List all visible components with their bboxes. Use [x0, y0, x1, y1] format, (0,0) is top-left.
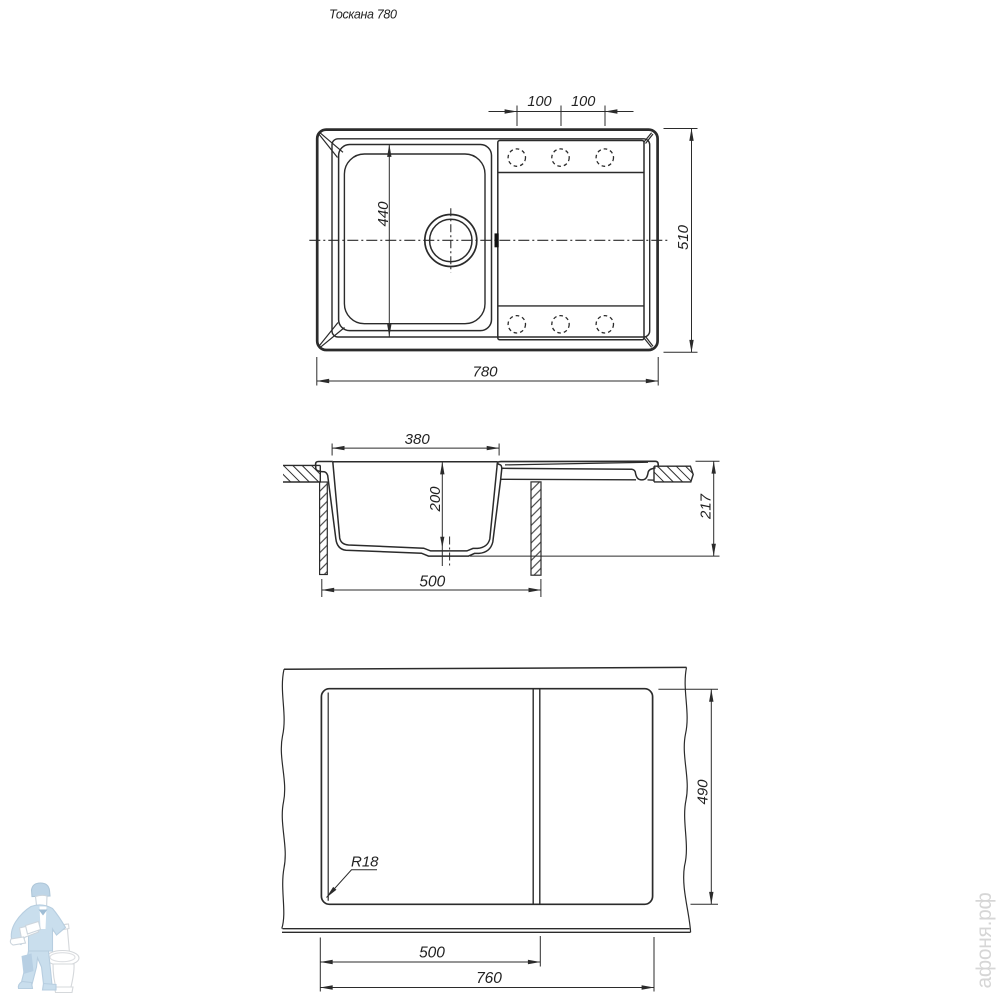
svg-text:760: 760 [476, 970, 502, 987]
svg-text:780: 780 [472, 364, 498, 381]
svg-text:500: 500 [419, 574, 445, 591]
svg-text:100: 100 [571, 94, 595, 110]
svg-text:афоня.рф: афоня.рф [973, 892, 996, 988]
svg-text:100: 100 [527, 94, 551, 110]
svg-text:490: 490 [695, 779, 712, 805]
svg-text:440: 440 [375, 201, 392, 227]
svg-text:200: 200 [427, 486, 444, 513]
svg-text:R18: R18 [351, 854, 379, 871]
svg-text:217: 217 [698, 493, 715, 520]
svg-text:500: 500 [419, 945, 445, 962]
svg-text:510: 510 [675, 224, 692, 250]
svg-text:Тоскана 780: Тоскана 780 [329, 8, 397, 22]
svg-text:380: 380 [405, 431, 431, 448]
